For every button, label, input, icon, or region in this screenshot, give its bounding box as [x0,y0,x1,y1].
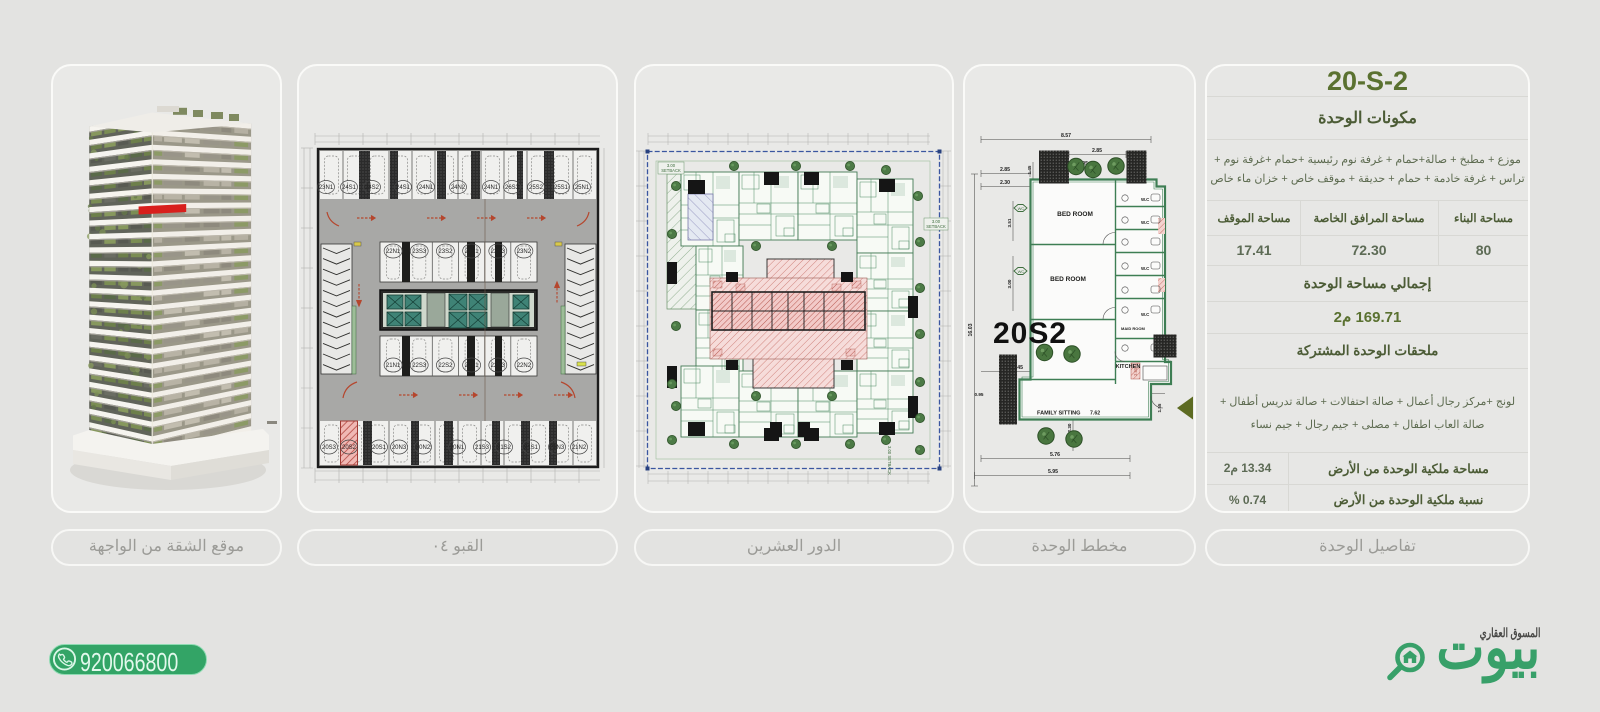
svg-text:W.C: W.C [1141,197,1150,202]
svg-text:20N1: 20N1 [450,445,465,451]
svg-text:7.62: 7.62 [1090,411,1100,417]
svg-text:3.51: 3.51 [1007,218,1012,227]
svg-text:BED ROOM: BED ROOM [1050,276,1086,283]
svg-text:24S1: 24S1 [396,185,411,191]
svg-text:20S1: 20S1 [372,445,387,451]
svg-text:24N1: 24N1 [484,185,499,191]
svg-text:23S3: 23S3 [412,249,427,255]
svg-text:22N2: 22N2 [517,363,532,369]
svg-text:22S1: 22S1 [465,363,480,369]
svg-text:21S2: 21S2 [497,445,512,451]
svg-text:25S1: 25S1 [554,185,569,191]
svg-text:20N2: 20N2 [416,445,431,451]
svg-text:2.85: 2.85 [1000,167,1010,173]
svg-text:2.85: 2.85 [1092,148,1102,154]
svg-text:22S3: 22S3 [412,363,427,369]
svg-text:23N1: 23N1 [319,185,334,191]
svg-text:5.95: 5.95 [1048,469,1058,475]
svg-text:1.45: 1.45 [1027,165,1032,174]
svg-text:3.65: 3.65 [1133,367,1138,376]
svg-text:16.03: 16.03 [968,323,974,336]
svg-text:22S2: 22S2 [438,363,453,369]
svg-text:W.C: W.C [1141,266,1150,271]
svg-text:21N3: 21N3 [550,445,565,451]
svg-text:2.30: 2.30 [1000,180,1010,186]
svg-text:22N3: 22N3 [491,363,506,369]
svg-text:23S1: 23S1 [465,249,480,255]
svg-text:20S2: 20S2 [342,445,357,451]
svg-text:W.C: W.C [1141,220,1150,225]
svg-text:WC: WC [1018,206,1025,211]
svg-text:24S2: 24S2 [365,185,380,191]
svg-text:21N1: 21N1 [386,363,401,369]
svg-text:SETBACK: SETBACK [661,168,681,173]
svg-text:FAMILY SITTING: FAMILY SITTING [1037,411,1081,417]
svg-text:SETBACK: SETBACK [926,224,946,229]
svg-text:3.00 SETBACK: 3.00 SETBACK [887,446,892,475]
svg-text:W.C: W.C [1141,312,1150,317]
svg-text:20S2: 20S2 [993,317,1067,350]
svg-text:20N3: 20N3 [392,445,407,451]
svg-text:WC: WC [1018,269,1025,274]
svg-text:24S1: 24S1 [342,185,357,191]
svg-text:26S3: 26S3 [505,185,520,191]
svg-text:BED ROOM: BED ROOM [1057,211,1093,218]
svg-text:3.00: 3.00 [1007,279,1012,288]
svg-text:21N2: 21N2 [572,445,587,451]
svg-text:24N1: 24N1 [419,185,434,191]
svg-text:MAID ROOM: MAID ROOM [1121,326,1145,331]
svg-text:21S1: 21S1 [524,445,539,451]
svg-text:23S2: 23S2 [438,249,453,255]
svg-text:21S3: 21S3 [475,445,490,451]
svg-text:5.76: 5.76 [1050,452,1060,458]
svg-text:23N2: 23N2 [517,249,532,255]
svg-text:20S3: 20S3 [322,445,337,451]
svg-text:0.95: 0.95 [975,392,984,397]
svg-text:23N3: 23N3 [491,249,506,255]
svg-text:22N1: 22N1 [386,249,401,255]
svg-text:8.57: 8.57 [1061,133,1071,139]
svg-text:25N1: 25N1 [575,185,590,191]
svg-text:25S2: 25S2 [529,185,544,191]
svg-text:24N2: 24N2 [451,185,466,191]
